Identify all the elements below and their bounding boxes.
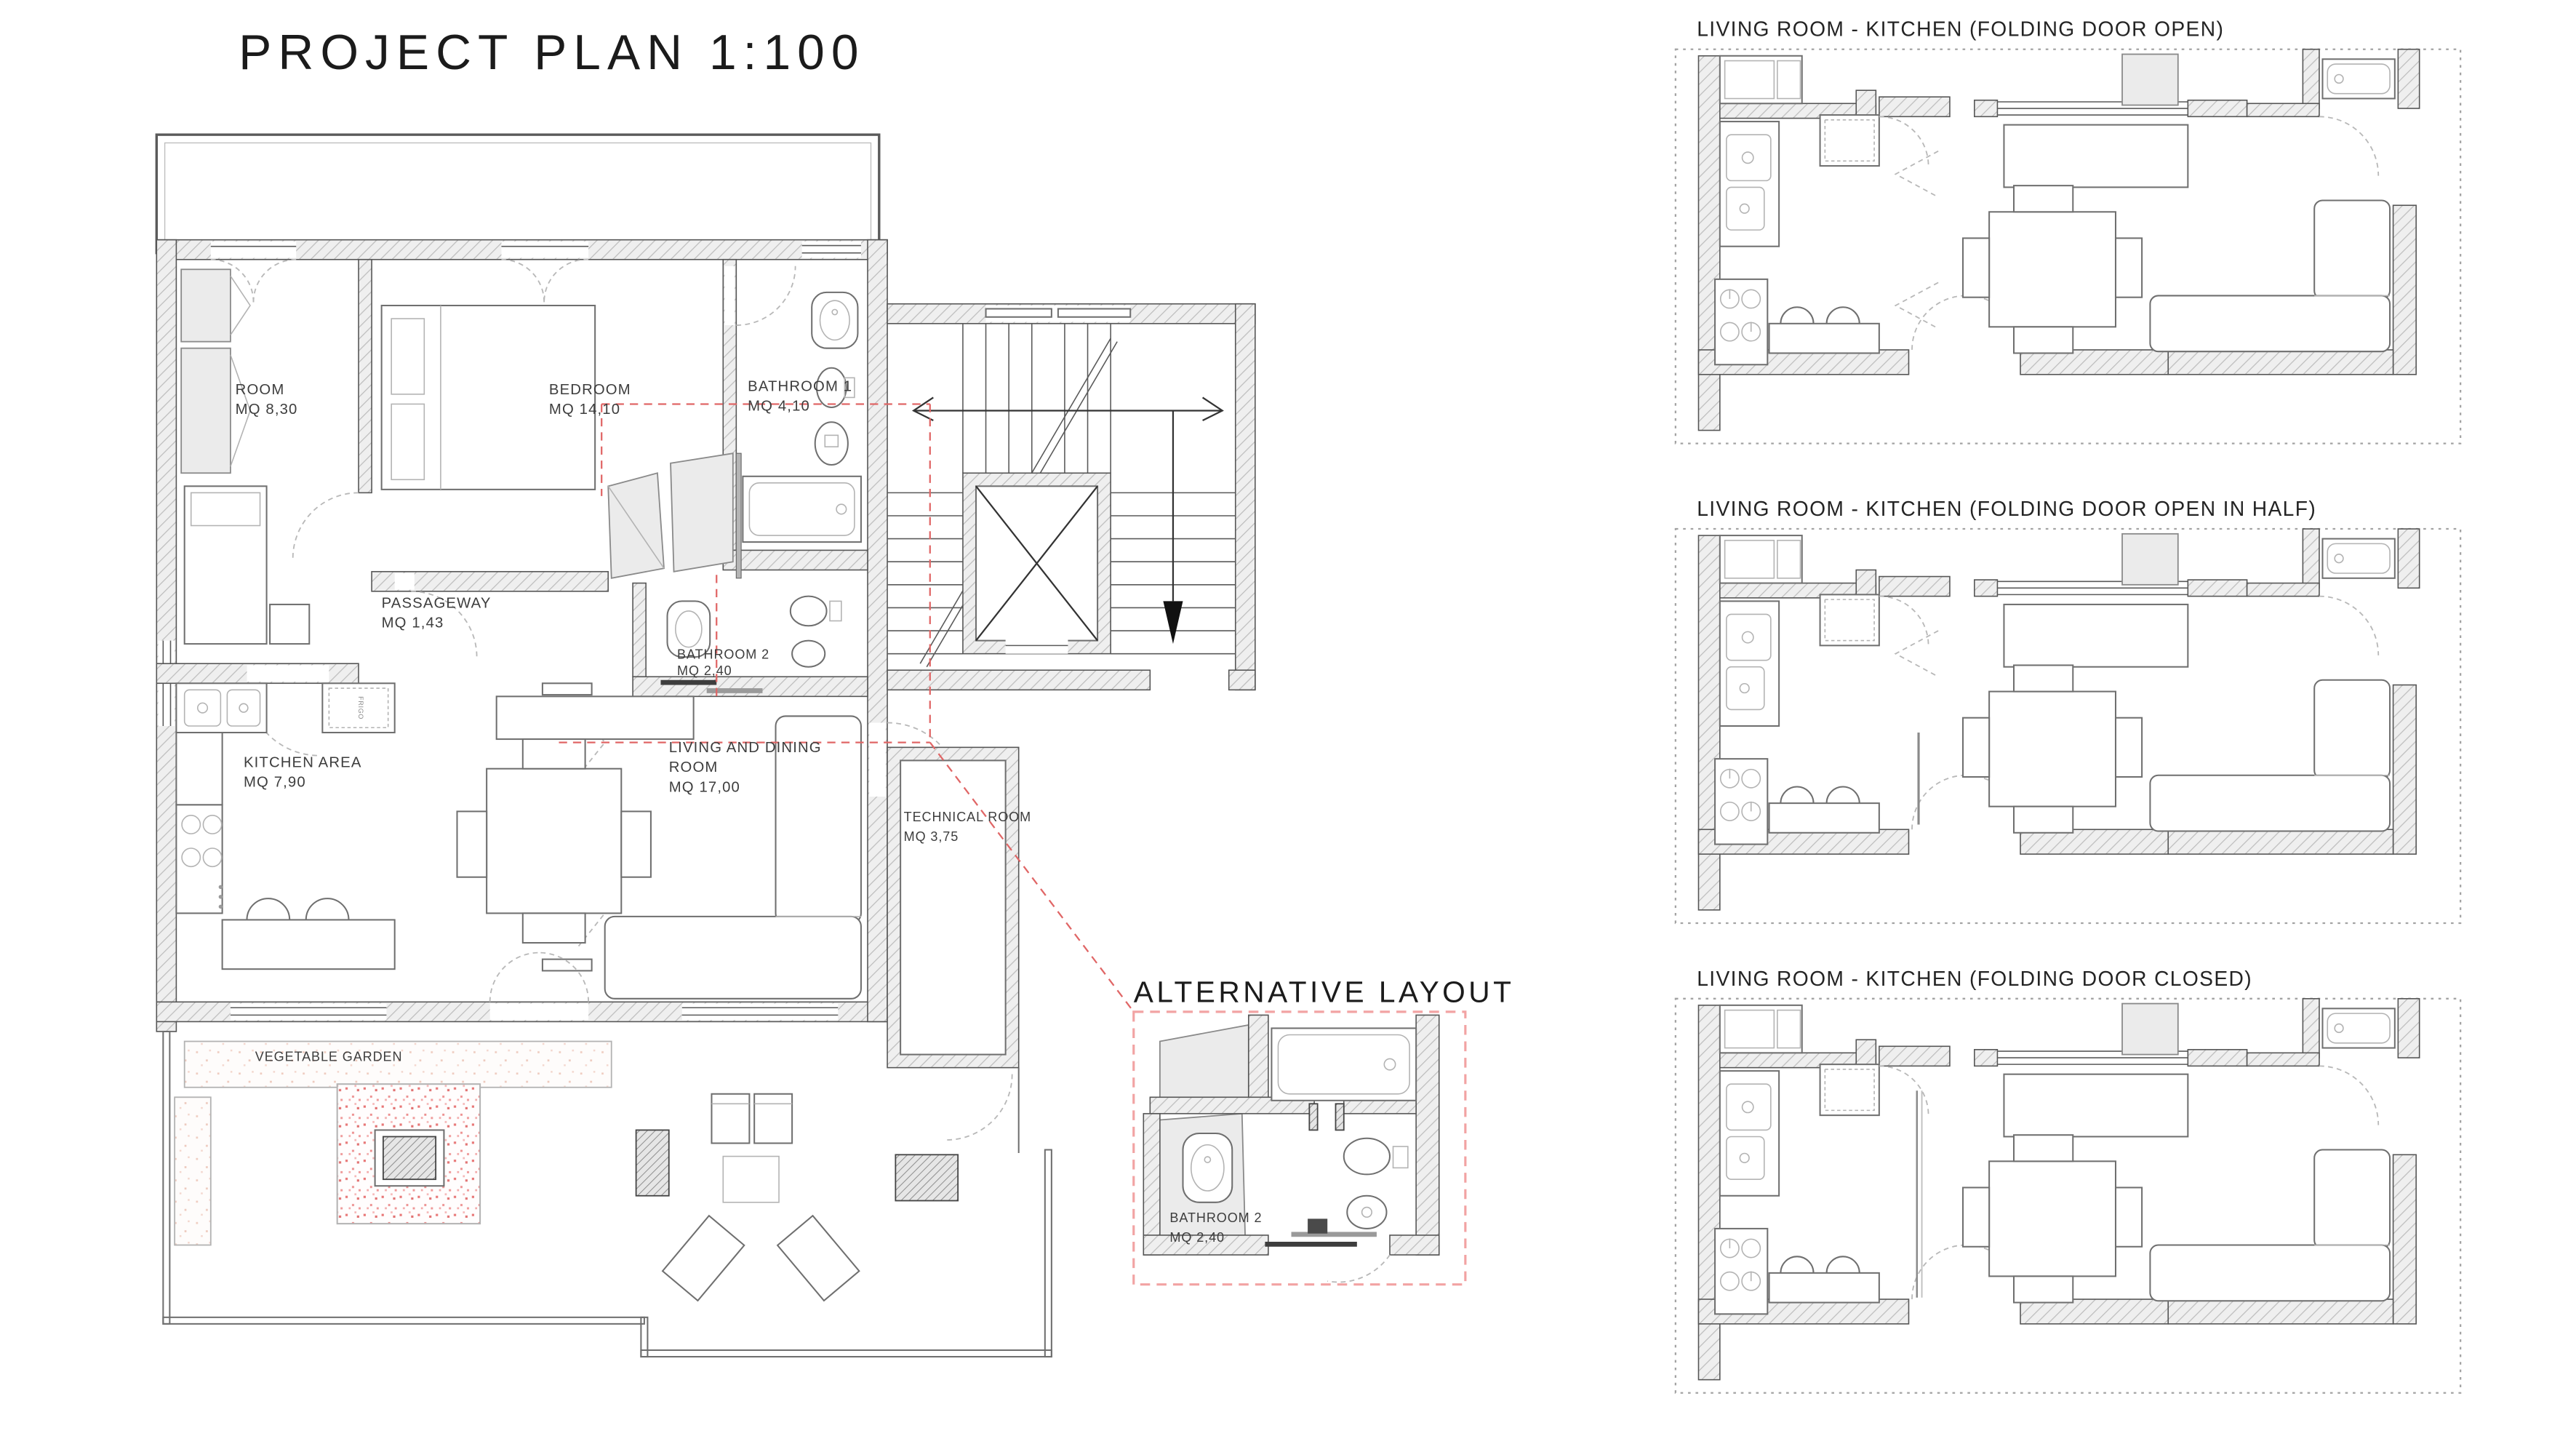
outdoor-furniture <box>636 1094 860 1301</box>
bathroom2-area: MQ 2,40 <box>677 663 732 678</box>
alternative-layout-title: ALTERNATIVE LAYOUT <box>1134 975 1515 1008</box>
wardrobe <box>181 269 231 341</box>
kitchen-area: MQ 7,90 <box>244 775 306 791</box>
detail-view-half: LIVING ROOM - KITCHEN (FOLDING DOOR OPEN… <box>1676 497 2460 923</box>
stove <box>176 805 223 913</box>
stool <box>247 898 289 920</box>
bathroom1-area: MQ 4,10 <box>748 398 810 414</box>
toilet <box>815 422 848 465</box>
page-title: PROJECT PLAN 1:100 <box>239 25 865 80</box>
main-floor-plan: FRIGO <box>156 135 1255 1357</box>
drawing-sheet: PROJECT PLAN 1:100 <box>0 0 2576 1452</box>
bedroom-label: BEDROOM <box>549 382 631 398</box>
door-handle-block <box>1308 1218 1327 1233</box>
sink <box>1183 1133 1232 1202</box>
living-area: MQ 17,00 <box>669 779 740 795</box>
terrace-top <box>156 135 879 253</box>
terrace-rail <box>163 1032 169 1324</box>
sliding-door-leaf <box>660 680 716 685</box>
sun-lounger <box>777 1216 859 1301</box>
bathroom2-label: BATHROOM 2 <box>677 647 769 661</box>
counter <box>176 733 222 805</box>
detail-title-closed: LIVING ROOM - KITCHEN (FOLDING DOOR CLOS… <box>1697 967 2252 990</box>
passageway-label: PASSAGEWAY <box>382 595 492 611</box>
room-door-arc <box>293 492 359 558</box>
stairwell <box>887 304 1255 690</box>
outdoor-chair <box>711 1094 749 1144</box>
sliding-door-track <box>1292 1232 1377 1237</box>
down-arrow <box>1163 601 1183 644</box>
single-bed <box>185 486 267 644</box>
folding-partition-panels <box>608 453 741 578</box>
room-label: ROOM <box>236 382 285 398</box>
toilet <box>791 597 841 626</box>
detail-title-open: LIVING ROOM - KITCHEN (FOLDING DOOR OPEN… <box>1697 17 2224 41</box>
sliding-door-track <box>707 688 763 693</box>
bedroom-area: MQ 14,10 <box>549 402 620 418</box>
terrace-rail <box>1045 1150 1052 1357</box>
technical-door-arc <box>946 1074 1012 1140</box>
tv-sideboard <box>497 696 694 739</box>
garden-label: VEGETABLE GARDEN <box>255 1050 403 1064</box>
terrace-door-bedroom <box>501 242 588 303</box>
detail-view-closed: LIVING ROOM - KITCHEN (FOLDING DOOR CLOS… <box>1676 967 2460 1393</box>
kitchen-sink-counter <box>176 683 266 733</box>
terrace-rail <box>163 1317 644 1324</box>
vegetable-garden <box>337 1084 480 1224</box>
kitchen-block: FRIGO <box>176 683 394 969</box>
bathtub <box>1271 1028 1416 1100</box>
alt-bathroom2-area: MQ 2,40 <box>1169 1230 1225 1245</box>
outdoor-table <box>723 1157 779 1202</box>
garden-bench <box>636 1130 669 1195</box>
kitchen-label: KITCHEN AREA <box>244 754 362 770</box>
alt-bathroom2-label: BATHROOM 2 <box>1169 1210 1262 1225</box>
wardrobe <box>181 348 231 474</box>
sink <box>812 292 857 348</box>
bathroom1-door-arc <box>736 266 795 325</box>
technical-label: TECHNICAL ROOM <box>904 810 1031 824</box>
room-furniture <box>181 269 309 644</box>
bathroom1-label: BATHROOM 1 <box>748 378 852 394</box>
bidet <box>792 641 825 667</box>
bidet <box>1347 1196 1386 1229</box>
living-label-2: ROOM <box>669 759 719 775</box>
fridge-label: FRIGO <box>357 696 364 719</box>
pillar <box>895 1154 958 1200</box>
peninsula-counter <box>223 920 395 969</box>
bathroom1-window <box>802 242 861 258</box>
door-arc <box>1327 1255 1390 1282</box>
terrace-rail <box>641 1350 1051 1357</box>
sliding-door-leaf <box>1265 1242 1356 1247</box>
technical-area: MQ 3,75 <box>904 829 959 844</box>
toilet <box>1344 1138 1408 1175</box>
nightstand <box>270 605 309 644</box>
alternative-layout: ALTERNATIVE LAYOUT BATHROOM 2 MQ 2,40 <box>1134 975 1515 1284</box>
living-label-1: LIVING AND DINING <box>669 740 822 756</box>
passageway-area: MQ 1,43 <box>382 615 444 631</box>
detail-view-open: LIVING ROOM - KITCHEN (FOLDING DOOR OPEN… <box>1676 17 2460 444</box>
elevator <box>963 473 1111 653</box>
outdoor-chair <box>754 1094 792 1144</box>
floor-plan-canvas: PROJECT PLAN 1:100 <box>0 0 2576 1452</box>
detail-title-half: LIVING ROOM - KITCHEN (FOLDING DOOR OPEN… <box>1697 497 2316 520</box>
planter <box>175 1097 211 1245</box>
bathtub <box>743 476 861 542</box>
dining-table <box>457 739 650 943</box>
sun-lounger <box>663 1216 744 1301</box>
room-area: MQ 8,30 <box>236 402 298 418</box>
planter <box>185 1042 612 1088</box>
bathroom1-fixtures <box>743 292 861 542</box>
stool <box>306 898 349 920</box>
